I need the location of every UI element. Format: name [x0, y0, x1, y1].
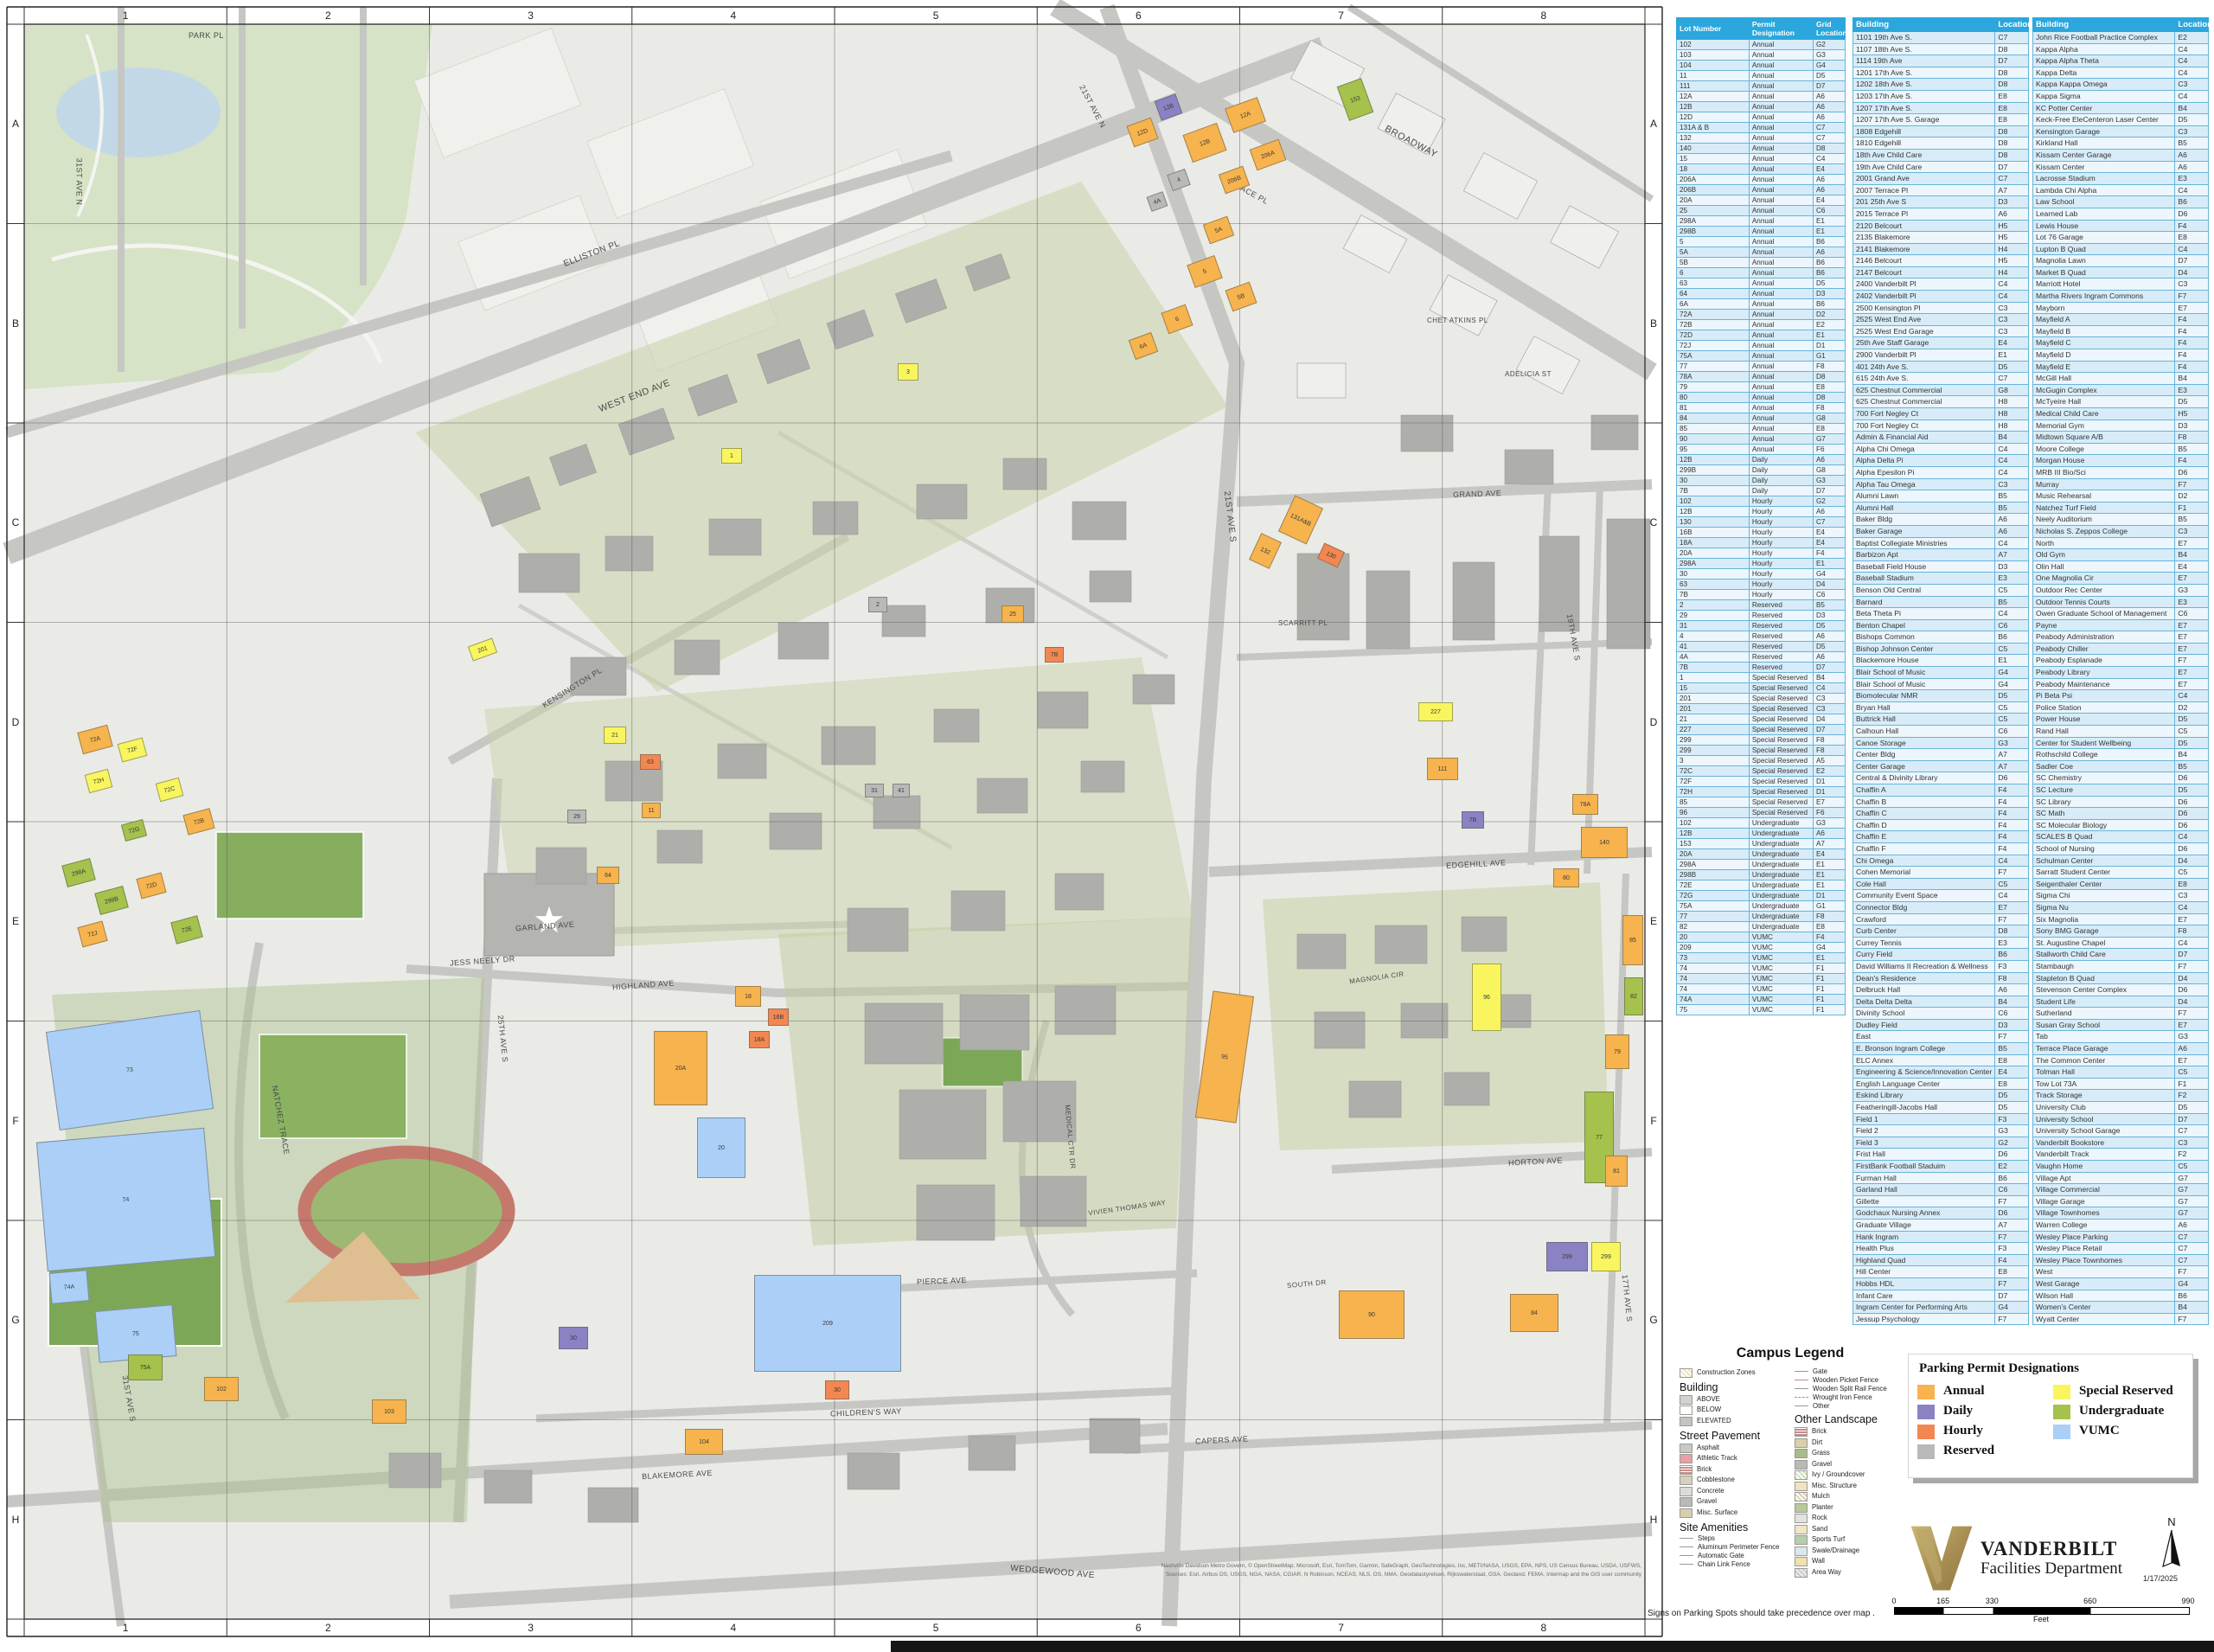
- table-row: 102UndergraduateG3: [1677, 818, 1846, 829]
- table-cell: Admin & Financial Aid: [1853, 432, 1995, 444]
- table-cell: A6: [1813, 247, 1845, 258]
- table-row: 3Special ReservedA5: [1677, 756, 1846, 766]
- table-cell: VUMC: [1749, 932, 1813, 943]
- table-cell: E3: [1995, 573, 2029, 585]
- table-row: Sigma NuC4: [2033, 901, 2209, 913]
- table-row: Vaughn HomeC5: [2033, 1161, 2209, 1173]
- table-cell: F7: [1995, 1313, 2029, 1325]
- table-cell: Old Gym: [2033, 549, 2175, 561]
- table-cell: B4: [2175, 749, 2209, 761]
- table-row: 73VUMCE1: [1677, 953, 1846, 964]
- legend-swatch: [1680, 1454, 1692, 1463]
- table-row: 298AHourlyE1: [1677, 559, 1846, 569]
- table-row: Beta Theta PiC4: [1853, 608, 2029, 620]
- table-cell: E7: [1995, 901, 2029, 913]
- table-cell: A7: [1995, 1219, 2029, 1231]
- table-cell: Seigenthaler Center: [2033, 878, 2175, 890]
- table-cell: Lacrosse Stadium: [2033, 173, 2175, 185]
- legend-swatch: [1680, 1405, 1692, 1415]
- legend-item: Sand: [1795, 1525, 1901, 1534]
- table-row: Law SchoolB6: [2033, 196, 2209, 208]
- table-cell: Barnard: [1853, 596, 1995, 608]
- table-cell: 12B: [1677, 102, 1750, 112]
- table-cell: 84: [1677, 413, 1750, 424]
- table-cell: Undergraduate: [1749, 849, 1813, 860]
- table-row: 103AnnualG3: [1677, 50, 1846, 61]
- table-cell: Chaffin E: [1853, 831, 1995, 843]
- table-cell: E1: [1813, 227, 1845, 237]
- table-cell: D5: [2175, 784, 2209, 797]
- table-row: Marriott HotelC3: [2033, 279, 2209, 291]
- grid-column-label: 4: [731, 10, 737, 22]
- table-row: 2500 Kensington PlC3: [1853, 302, 2029, 314]
- table-cell: C3: [2175, 125, 2209, 138]
- table-cell: 30: [1677, 569, 1750, 579]
- table-cell: F1: [1813, 964, 1845, 974]
- table-cell: E8: [1995, 90, 2029, 102]
- table-row: Jessup PsychologyF7: [1853, 1313, 2029, 1325]
- table-row: 102AnnualG2: [1677, 40, 1846, 50]
- table-cell: 25th Ave Staff Garage: [1853, 337, 1995, 349]
- legend-label: Planter: [1812, 1504, 1833, 1512]
- table-row: Lewis HouseF4: [2033, 220, 2209, 232]
- table-cell: C6: [1995, 1184, 2029, 1196]
- table-cell: Sony BMG Garage: [2033, 925, 2175, 938]
- table-cell: Hourly: [1749, 590, 1813, 600]
- table-cell: Canoe Storage: [1853, 737, 1995, 749]
- table-cell: Annual: [1749, 351, 1813, 362]
- table-cell: Rand Hall: [2033, 726, 2175, 738]
- street-label: PARK PL: [189, 31, 224, 40]
- legend-swatch: [1795, 1492, 1808, 1502]
- table-row: Stevenson Center ComplexD6: [2033, 984, 2209, 996]
- legend-item: Gravel: [1680, 1497, 1786, 1507]
- table-cell: 7B: [1677, 486, 1750, 496]
- permit-swatch: [1917, 1444, 1935, 1459]
- table-cell: B5: [2175, 760, 2209, 772]
- table-cell: Annual: [1749, 133, 1813, 144]
- table-cell: D8: [1995, 79, 2029, 91]
- table-cell: D1: [1813, 787, 1845, 797]
- table-row: 12AAnnualA6: [1677, 92, 1846, 102]
- table-row: The Common CenterE7: [2033, 1054, 2209, 1066]
- parking-lot: 7B: [1462, 811, 1484, 829]
- table-row: 140AnnualD8: [1677, 144, 1846, 154]
- parking-lot: 63: [640, 754, 661, 770]
- parking-lot: 209: [754, 1275, 901, 1372]
- table-row: Kirkland HallB5: [2033, 138, 2209, 150]
- scale-tick-label: 660: [2083, 1597, 2096, 1605]
- vanderbilt-v-icon: [1910, 1524, 1974, 1593]
- table-cell: F4: [1995, 796, 2029, 808]
- table-cell: F7: [2175, 960, 2209, 972]
- table-row: Susan Gray SchoolE7: [2033, 1019, 2209, 1031]
- legend-section-header: Other Landscape: [1795, 1413, 1901, 1425]
- table-cell: 2001 Grand Ave: [1853, 173, 1995, 185]
- table-row: Music RehearsalD2: [2033, 490, 2209, 503]
- street-label: ADELICIA ST: [1505, 370, 1552, 378]
- table-cell: 6: [1677, 268, 1750, 279]
- parking-lot: 11: [642, 803, 661, 818]
- table-cell: 201 25th Ave S: [1853, 196, 1995, 208]
- table-cell: Special Reserved: [1749, 673, 1813, 683]
- table-cell: 12D: [1677, 112, 1750, 123]
- table-row: Outdoor Tennis CourtsE3: [2033, 596, 2209, 608]
- table-cell: Annual: [1749, 206, 1813, 216]
- table-cell: Annual: [1749, 247, 1813, 258]
- table-row: 12BDailyA6: [1677, 455, 1846, 465]
- table-cell: SC Molecular Biology: [2033, 819, 2175, 831]
- table-cell: Murray: [2033, 478, 2175, 490]
- table-cell: F2: [2175, 1149, 2209, 1161]
- table-cell: A5: [1813, 756, 1845, 766]
- table-cell: Alpha Chi Omega: [1853, 443, 1995, 455]
- table-cell: FirstBank Football Staduim: [1853, 1161, 1995, 1173]
- table-cell: D7: [2175, 1113, 2209, 1125]
- table-cell: Bryan Hall: [1853, 701, 1995, 714]
- table-cell: Gillette: [1853, 1195, 1995, 1207]
- table-cell: 74: [1677, 974, 1750, 984]
- table-cell: Annual: [1749, 434, 1813, 445]
- legend-label: Dirt: [1812, 1439, 1822, 1447]
- table-row: Mayfield BF4: [2033, 325, 2209, 337]
- table-cell: D2: [2175, 490, 2209, 503]
- table-cell: Reserved: [1749, 621, 1813, 631]
- table-cell: D6: [2175, 808, 2209, 820]
- table-row: 18th Ave Child CareD8: [1853, 149, 2029, 161]
- table-cell: G4: [1813, 61, 1845, 71]
- legend-swatch: [1680, 1444, 1692, 1453]
- table-cell: B5: [1995, 596, 2029, 608]
- legend-label: Aluminum Perimeter Fence: [1698, 1544, 1779, 1552]
- table-cell: B5: [1995, 502, 2029, 514]
- table-row: 72CSpecial ReservedE2: [1677, 766, 1846, 777]
- table-cell: E2: [2175, 32, 2209, 44]
- table-cell: McGill Hall: [2033, 373, 2175, 385]
- table-row: Power HouseD5: [2033, 714, 2209, 726]
- table-row: Peabody ChillerE7: [2033, 643, 2209, 655]
- legend-item: Aluminum Perimeter Fence: [1680, 1544, 1786, 1552]
- table-row: 1201 17th Ave S.D8: [1853, 67, 2029, 79]
- table-cell: 12B: [1677, 455, 1750, 465]
- table-row: Cole HallC5: [1853, 878, 2029, 890]
- table-cell: D7: [2175, 255, 2209, 267]
- table-cell: 1207 17th Ave S. Garage: [1853, 114, 1995, 126]
- parking-lot: 79: [1605, 1034, 1629, 1069]
- parking-lot: 299: [1591, 1242, 1621, 1271]
- parking-lot: 299: [1546, 1242, 1588, 1271]
- grid-row-label: C: [1650, 516, 1658, 528]
- table-cell: G7: [2175, 1207, 2209, 1220]
- table-cell: F6: [1813, 808, 1845, 818]
- parking-lot: 21: [604, 727, 626, 744]
- legend-item: Swale/Drainage: [1795, 1546, 1901, 1556]
- table-cell: B4: [1995, 432, 2029, 444]
- table-cell: D5: [2175, 114, 2209, 126]
- table-row: 625 Chestnut CommercialG8: [1853, 384, 2029, 396]
- table-cell: Peabody Maintenance: [2033, 678, 2175, 690]
- table-row: Stapleton B QuadD4: [2033, 972, 2209, 984]
- grid-column-label: 3: [528, 1622, 534, 1634]
- table-cell: 298A: [1677, 860, 1750, 870]
- table-row: 615 24th Ave S.C7: [1853, 373, 2029, 385]
- table-cell: 72J: [1677, 341, 1750, 351]
- table-cell: Annual: [1749, 445, 1813, 455]
- table-cell: G8: [1995, 384, 2029, 396]
- table-cell: B5: [1995, 490, 2029, 503]
- table-row: Peabody AdministrationE7: [2033, 631, 2209, 644]
- table-cell: VUMC: [1749, 1005, 1813, 1015]
- table-row: KC Potter CenterB4: [2033, 102, 2209, 114]
- table-cell: Special Reserved: [1749, 725, 1813, 735]
- table-cell: School of Nursing: [2033, 842, 2175, 855]
- table-row: 15AnnualC4: [1677, 154, 1846, 164]
- table-cell: Peabody Library: [2033, 667, 2175, 679]
- table-row: 2525 West End GarageC3: [1853, 325, 2029, 337]
- table-cell: Undergraduate: [1749, 818, 1813, 829]
- table-cell: Barbizon Apt: [1853, 549, 1995, 561]
- campus-legend: Campus Legend Construction ZonesBuilding…: [1680, 1346, 1901, 1578]
- table-cell: G7: [2175, 1172, 2209, 1184]
- permit-legend-item: Special Reserved: [2053, 1384, 2184, 1399]
- table-row: Midtown Square A/BF8: [2033, 432, 2209, 444]
- table-cell: E8: [1995, 1054, 2029, 1066]
- table-cell: Kirkland Hall: [2033, 138, 2175, 150]
- table-cell: 132: [1677, 133, 1750, 144]
- table-cell: Annual: [1749, 50, 1813, 61]
- table-cell: 102: [1677, 40, 1750, 50]
- table-cell: Godchaux Nursing Annex: [1853, 1207, 1995, 1220]
- table-cell: F4: [2175, 337, 2209, 349]
- table-cell: Reserved: [1749, 642, 1813, 652]
- table-cell: Delbruck Hall: [1853, 984, 1995, 996]
- table-cell: 103: [1677, 50, 1750, 61]
- table-cell: Annual: [1749, 341, 1813, 351]
- table-cell: C4: [1995, 279, 2029, 291]
- table-cell: B6: [1995, 1172, 2029, 1184]
- table-cell: Kappa Alpha Theta: [2033, 55, 2175, 67]
- table-row: West GarageG4: [2033, 1277, 2209, 1290]
- table-cell: E7: [2175, 1054, 2209, 1066]
- table-cell: D6: [2175, 842, 2209, 855]
- table-cell: D7: [2175, 949, 2209, 961]
- legend-item: Automatic Gate: [1680, 1553, 1786, 1560]
- table-cell: 78A: [1677, 372, 1750, 382]
- table-cell: C5: [2175, 867, 2209, 879]
- table-cell: C4: [2175, 67, 2209, 79]
- table-cell: C5: [2175, 726, 2209, 738]
- table-row: Lacrosse StadiumE3: [2033, 173, 2209, 185]
- table-cell: 111: [1677, 81, 1750, 92]
- table-cell: 20: [1677, 932, 1750, 943]
- table-cell: F4: [2175, 455, 2209, 467]
- table-cell: C6: [1995, 726, 2029, 738]
- table-cell: C4: [2175, 243, 2209, 255]
- table-cell: Baseball Field House: [1853, 560, 1995, 573]
- table-cell: E1: [1813, 860, 1845, 870]
- table-cell: 700 Fort Negley Ct: [1853, 419, 1995, 432]
- table-row: Hill CenterE8: [1853, 1266, 2029, 1278]
- legend-item: Rock: [1795, 1514, 1901, 1523]
- building-table-2: BuildingLocation John Rice Football Prac…: [2032, 17, 2209, 1325]
- table-cell: 2500 Kensington Pl: [1853, 302, 1995, 314]
- table-row: Wilson HallB6: [2033, 1290, 2209, 1302]
- table-cell: C3: [1995, 314, 2029, 326]
- table-row: Market B QuadD4: [2033, 266, 2209, 279]
- table-row: Kappa SigmaC4: [2033, 90, 2209, 102]
- table-cell: E7: [2175, 1019, 2209, 1031]
- table-row: PayneE7: [2033, 619, 2209, 631]
- legend-label: Gravel: [1697, 1498, 1717, 1506]
- table-row: Bryan HallC5: [1853, 701, 2029, 714]
- table-cell: Annual: [1749, 144, 1813, 154]
- table-row: 5BAnnualB6: [1677, 258, 1846, 268]
- permit-label: Daily: [1943, 1404, 1973, 1418]
- table-cell: E1: [1813, 216, 1845, 227]
- table-cell: Blackemore House: [1853, 655, 1995, 667]
- table-row: Warren CollegeA6: [2033, 1219, 2209, 1231]
- table-cell: 15: [1677, 683, 1750, 694]
- legend-label: Rock: [1812, 1514, 1827, 1522]
- table-cell: SC Lecture: [2033, 784, 2175, 797]
- table-row: TabG3: [2033, 1031, 2209, 1043]
- parking-lot: 140: [1581, 827, 1628, 858]
- table-row: 82UndergraduateE8: [1677, 922, 1846, 932]
- table-cell: 19th Ave Child Care: [1853, 161, 1995, 173]
- table-cell: 298B: [1677, 227, 1750, 237]
- table-cell: KC Potter Center: [2033, 102, 2175, 114]
- table-cell: F4: [1995, 842, 2029, 855]
- table-row: Blackemore HouseE1: [1853, 655, 2029, 667]
- parking-lot: 64: [597, 867, 619, 884]
- table-cell: Undergraduate: [1749, 829, 1813, 839]
- table-cell: Center Bldg: [1853, 749, 1995, 761]
- table-cell: C7: [1995, 32, 2029, 44]
- table-cell: 96: [1677, 808, 1750, 818]
- table-cell: Benson Old Central: [1853, 584, 1995, 596]
- table-cell: E2: [1813, 320, 1845, 330]
- table-cell: Delta Delta Delta: [1853, 996, 1995, 1008]
- table-row: Chaffin AF4: [1853, 784, 2029, 797]
- table-cell: D8: [1995, 149, 2029, 161]
- legend-section-header: Site Amenities: [1680, 1521, 1786, 1534]
- parking-lot: 20A: [654, 1031, 707, 1105]
- table-cell: E8: [1813, 424, 1845, 434]
- grid-row-label: A: [12, 118, 19, 130]
- table-cell: Dean's Residence: [1853, 972, 1995, 984]
- table-row: 77UndergraduateF8: [1677, 912, 1846, 922]
- table-cell: F7: [2175, 1008, 2209, 1020]
- table-cell: C3: [2175, 79, 2209, 91]
- table-row: 131A & BAnnualC7: [1677, 123, 1846, 133]
- table-cell: Annual: [1749, 320, 1813, 330]
- legend-swatch: [1795, 1503, 1808, 1513]
- table-cell: 75A: [1677, 351, 1750, 362]
- table-cell: G3: [1813, 50, 1845, 61]
- table-cell: C3: [1995, 302, 2029, 314]
- parking-lot: 84: [1510, 1294, 1558, 1332]
- street-label: 31ST AVE N: [74, 158, 83, 206]
- table-cell: Stallworth Child Care: [2033, 949, 2175, 961]
- table-row: Benton ChapelC6: [1853, 619, 2029, 631]
- table-row: 63AnnualD5: [1677, 279, 1846, 289]
- table-row: 75AAnnualG1: [1677, 351, 1846, 362]
- table-row: Baker GarageA6: [1853, 525, 2029, 537]
- table-cell: Biomolecular NMR: [1853, 690, 1995, 702]
- table-cell: Special Reserved: [1749, 694, 1813, 704]
- table-cell: D4: [2175, 266, 2209, 279]
- parking-lot: 96: [1472, 964, 1501, 1031]
- parking-lot: 80: [1553, 868, 1579, 887]
- legend-swatch: [1795, 1525, 1808, 1534]
- table-cell: Annual: [1749, 102, 1813, 112]
- table-cell: D6: [1995, 772, 2029, 784]
- table-cell: B6: [1995, 949, 2029, 961]
- table-cell: 2135 Blakemore: [1853, 232, 1995, 244]
- table-cell: Peabody Chiller: [2033, 643, 2175, 655]
- table-cell: Dudley Field: [1853, 1019, 1995, 1031]
- legend-label: Misc. Surface: [1697, 1509, 1737, 1517]
- table-cell: 63: [1677, 279, 1750, 289]
- table-cell: A6: [1813, 652, 1845, 663]
- parking-lot: 31: [865, 784, 884, 797]
- table-cell: A6: [1995, 984, 2029, 996]
- table-cell: Lot 76 Garage: [2033, 232, 2175, 244]
- table-cell: C3: [2175, 279, 2209, 291]
- table-cell: Baseball Stadium: [1853, 573, 1995, 585]
- table-cell: D6: [2175, 984, 2209, 996]
- legend-label: Construction Zones: [1697, 1369, 1756, 1377]
- table-row: Rand HallC5: [2033, 726, 2209, 738]
- table-cell: Mayfield A: [2033, 314, 2175, 326]
- legend-swatch: [1680, 1555, 1693, 1556]
- table-cell: B6: [1813, 268, 1845, 279]
- table-cell: F7: [1995, 1231, 2029, 1243]
- table-cell: C4: [2175, 90, 2209, 102]
- table-cell: Highland Quad: [1853, 1254, 1995, 1266]
- table-cell: E7: [2175, 678, 2209, 690]
- table-cell: Center Garage: [1853, 760, 1995, 772]
- table-cell: Reserved: [1749, 631, 1813, 642]
- table-row: Hank IngramF7: [1853, 1231, 2029, 1243]
- table-cell: D8: [1995, 67, 2029, 79]
- table-cell: E8: [2175, 232, 2209, 244]
- table-row: 2900 Vanderbilt PlE1: [1853, 349, 2029, 362]
- legend-item: Sports Turf: [1795, 1535, 1901, 1545]
- parking-lot: 78A: [1572, 794, 1598, 815]
- table-cell: Annual: [1749, 227, 1813, 237]
- table-cell: 1: [1677, 673, 1750, 683]
- table-cell: C4: [2175, 55, 2209, 67]
- table-row: Alumni HallB5: [1853, 502, 2029, 514]
- table-cell: F1: [1813, 995, 1845, 1005]
- table-cell: West Garage: [2033, 1277, 2175, 1290]
- table-cell: 63: [1677, 579, 1750, 590]
- table-row: Benson Old CentralC5: [1853, 584, 2029, 596]
- table-cell: David Williams II Recreation & Wellness: [1853, 960, 1995, 972]
- table-cell: D1: [1813, 777, 1845, 787]
- legend-label: Cobblestone: [1697, 1476, 1735, 1484]
- table-cell: 75: [1677, 1005, 1750, 1015]
- legend-swatch: [1680, 1497, 1692, 1507]
- table-cell: C3: [2175, 1137, 2209, 1149]
- table-cell: 64: [1677, 289, 1750, 299]
- table-cell: Midtown Square A/B: [2033, 432, 2175, 444]
- table-cell: Cole Hall: [1853, 878, 1995, 890]
- table-cell: D6: [2175, 466, 2209, 478]
- table-cell: Track Storage: [2033, 1090, 2175, 1102]
- table-cell: B4: [1813, 673, 1845, 683]
